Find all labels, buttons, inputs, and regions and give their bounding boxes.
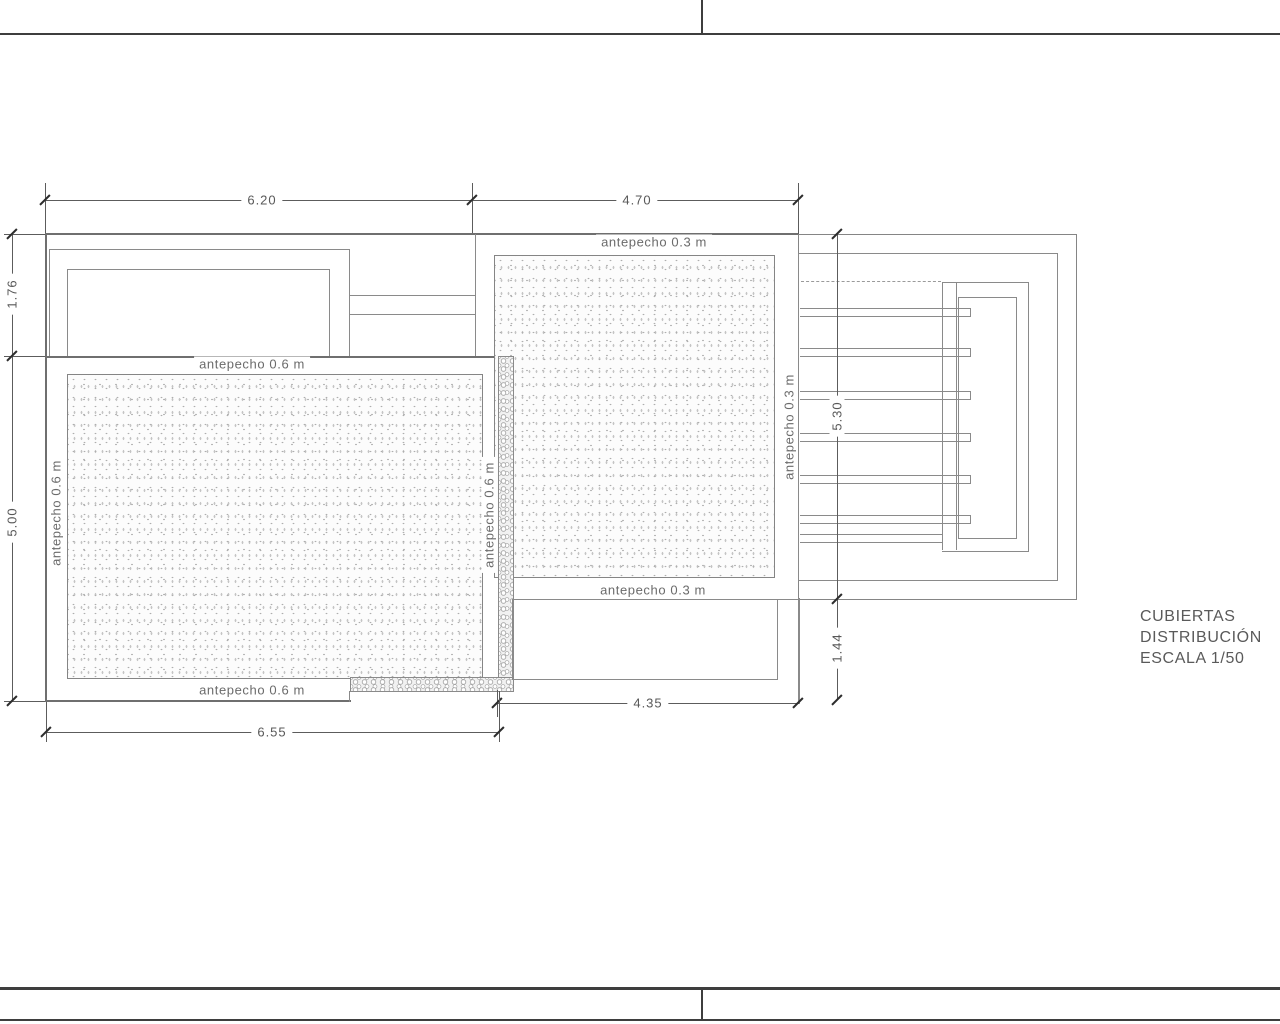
dim-extension bbox=[46, 702, 47, 742]
drawing-sheet: 6.20 4.70 1.76 5.00 5.30 1.44 4.35 6.55 … bbox=[0, 0, 1280, 1024]
building-bottom-wall bbox=[45, 700, 351, 702]
title-block: CUBIERTAS DISTRIBUCIÓN ESCALA 1/50 bbox=[1140, 606, 1262, 669]
pergola-beam bbox=[800, 475, 971, 484]
dim-label-top-right: 4.70 bbox=[616, 193, 657, 208]
building-bottom-jog bbox=[349, 691, 350, 702]
terrace-left-wall bbox=[475, 234, 476, 356]
dim-line-top bbox=[45, 200, 799, 201]
dim-label-bottom-inner: 4.35 bbox=[627, 696, 668, 711]
wall-hatch-bottom-strip bbox=[350, 677, 514, 692]
pergola-dashed-line bbox=[801, 281, 941, 282]
dim-extension bbox=[472, 183, 473, 233]
pergola-beam bbox=[800, 433, 971, 442]
lower-roof-outline bbox=[512, 599, 778, 680]
dim-label-bottom-outer: 6.55 bbox=[251, 725, 292, 740]
pergola-beam bbox=[800, 308, 971, 317]
pergola-beam bbox=[800, 515, 971, 524]
dim-label-right-upper: 5.30 bbox=[830, 395, 845, 436]
parapet-label-main-top: antepecho 0.6 m bbox=[194, 357, 310, 372]
parapet-label-terrace-bottom: antepecho 0.3 m bbox=[595, 583, 711, 598]
sheet-top-rule bbox=[0, 33, 1280, 35]
sheet-bottom-divider bbox=[701, 987, 703, 1021]
parapet-label-terrace-top: antepecho 0.3 m bbox=[596, 235, 712, 250]
title-line-1: CUBIERTAS bbox=[1140, 606, 1262, 627]
sheet-bottom-edge-rule bbox=[0, 1019, 1280, 1021]
upper-room-inner bbox=[67, 269, 330, 357]
parapet-label-main-right: antepecho 0.6 m bbox=[482, 457, 497, 573]
dim-label-left-upper: 1.76 bbox=[5, 273, 20, 314]
pergola-frame-inner bbox=[958, 297, 1017, 539]
parapet-label-main-left: antepecho 0.6 m bbox=[49, 455, 64, 571]
pergola-beam bbox=[800, 348, 971, 357]
lower-roof-top-extension bbox=[777, 599, 799, 600]
dim-label-right-lower: 1.44 bbox=[830, 627, 845, 668]
pergola-bottom-rail bbox=[800, 534, 942, 543]
title-line-2: DISTRIBUCIÓN bbox=[1140, 627, 1262, 648]
dim-extension bbox=[499, 691, 500, 742]
dim-label-left-lower: 5.00 bbox=[5, 501, 20, 542]
corridor-lower-line bbox=[349, 314, 476, 315]
title-line-3: ESCALA 1/50 bbox=[1140, 648, 1262, 669]
pergola-beam bbox=[800, 391, 971, 400]
building-left-wall bbox=[45, 233, 47, 702]
main-roof-hatch bbox=[67, 374, 483, 679]
dim-label-top-left: 6.20 bbox=[241, 193, 282, 208]
dim-extension bbox=[45, 183, 46, 233]
parapet-label-terrace-right: antepecho 0.3 m bbox=[782, 369, 797, 485]
dim-extension bbox=[798, 183, 799, 234]
pergola-left-wall-extension bbox=[798, 598, 800, 704]
terrace-roof-hatch bbox=[494, 255, 775, 578]
corridor-upper-line bbox=[349, 295, 476, 296]
parapet-label-main-bottom: antepecho 0.6 m bbox=[194, 683, 310, 698]
sheet-bottom-rule bbox=[0, 987, 1280, 990]
sheet-top-divider bbox=[701, 0, 703, 35]
